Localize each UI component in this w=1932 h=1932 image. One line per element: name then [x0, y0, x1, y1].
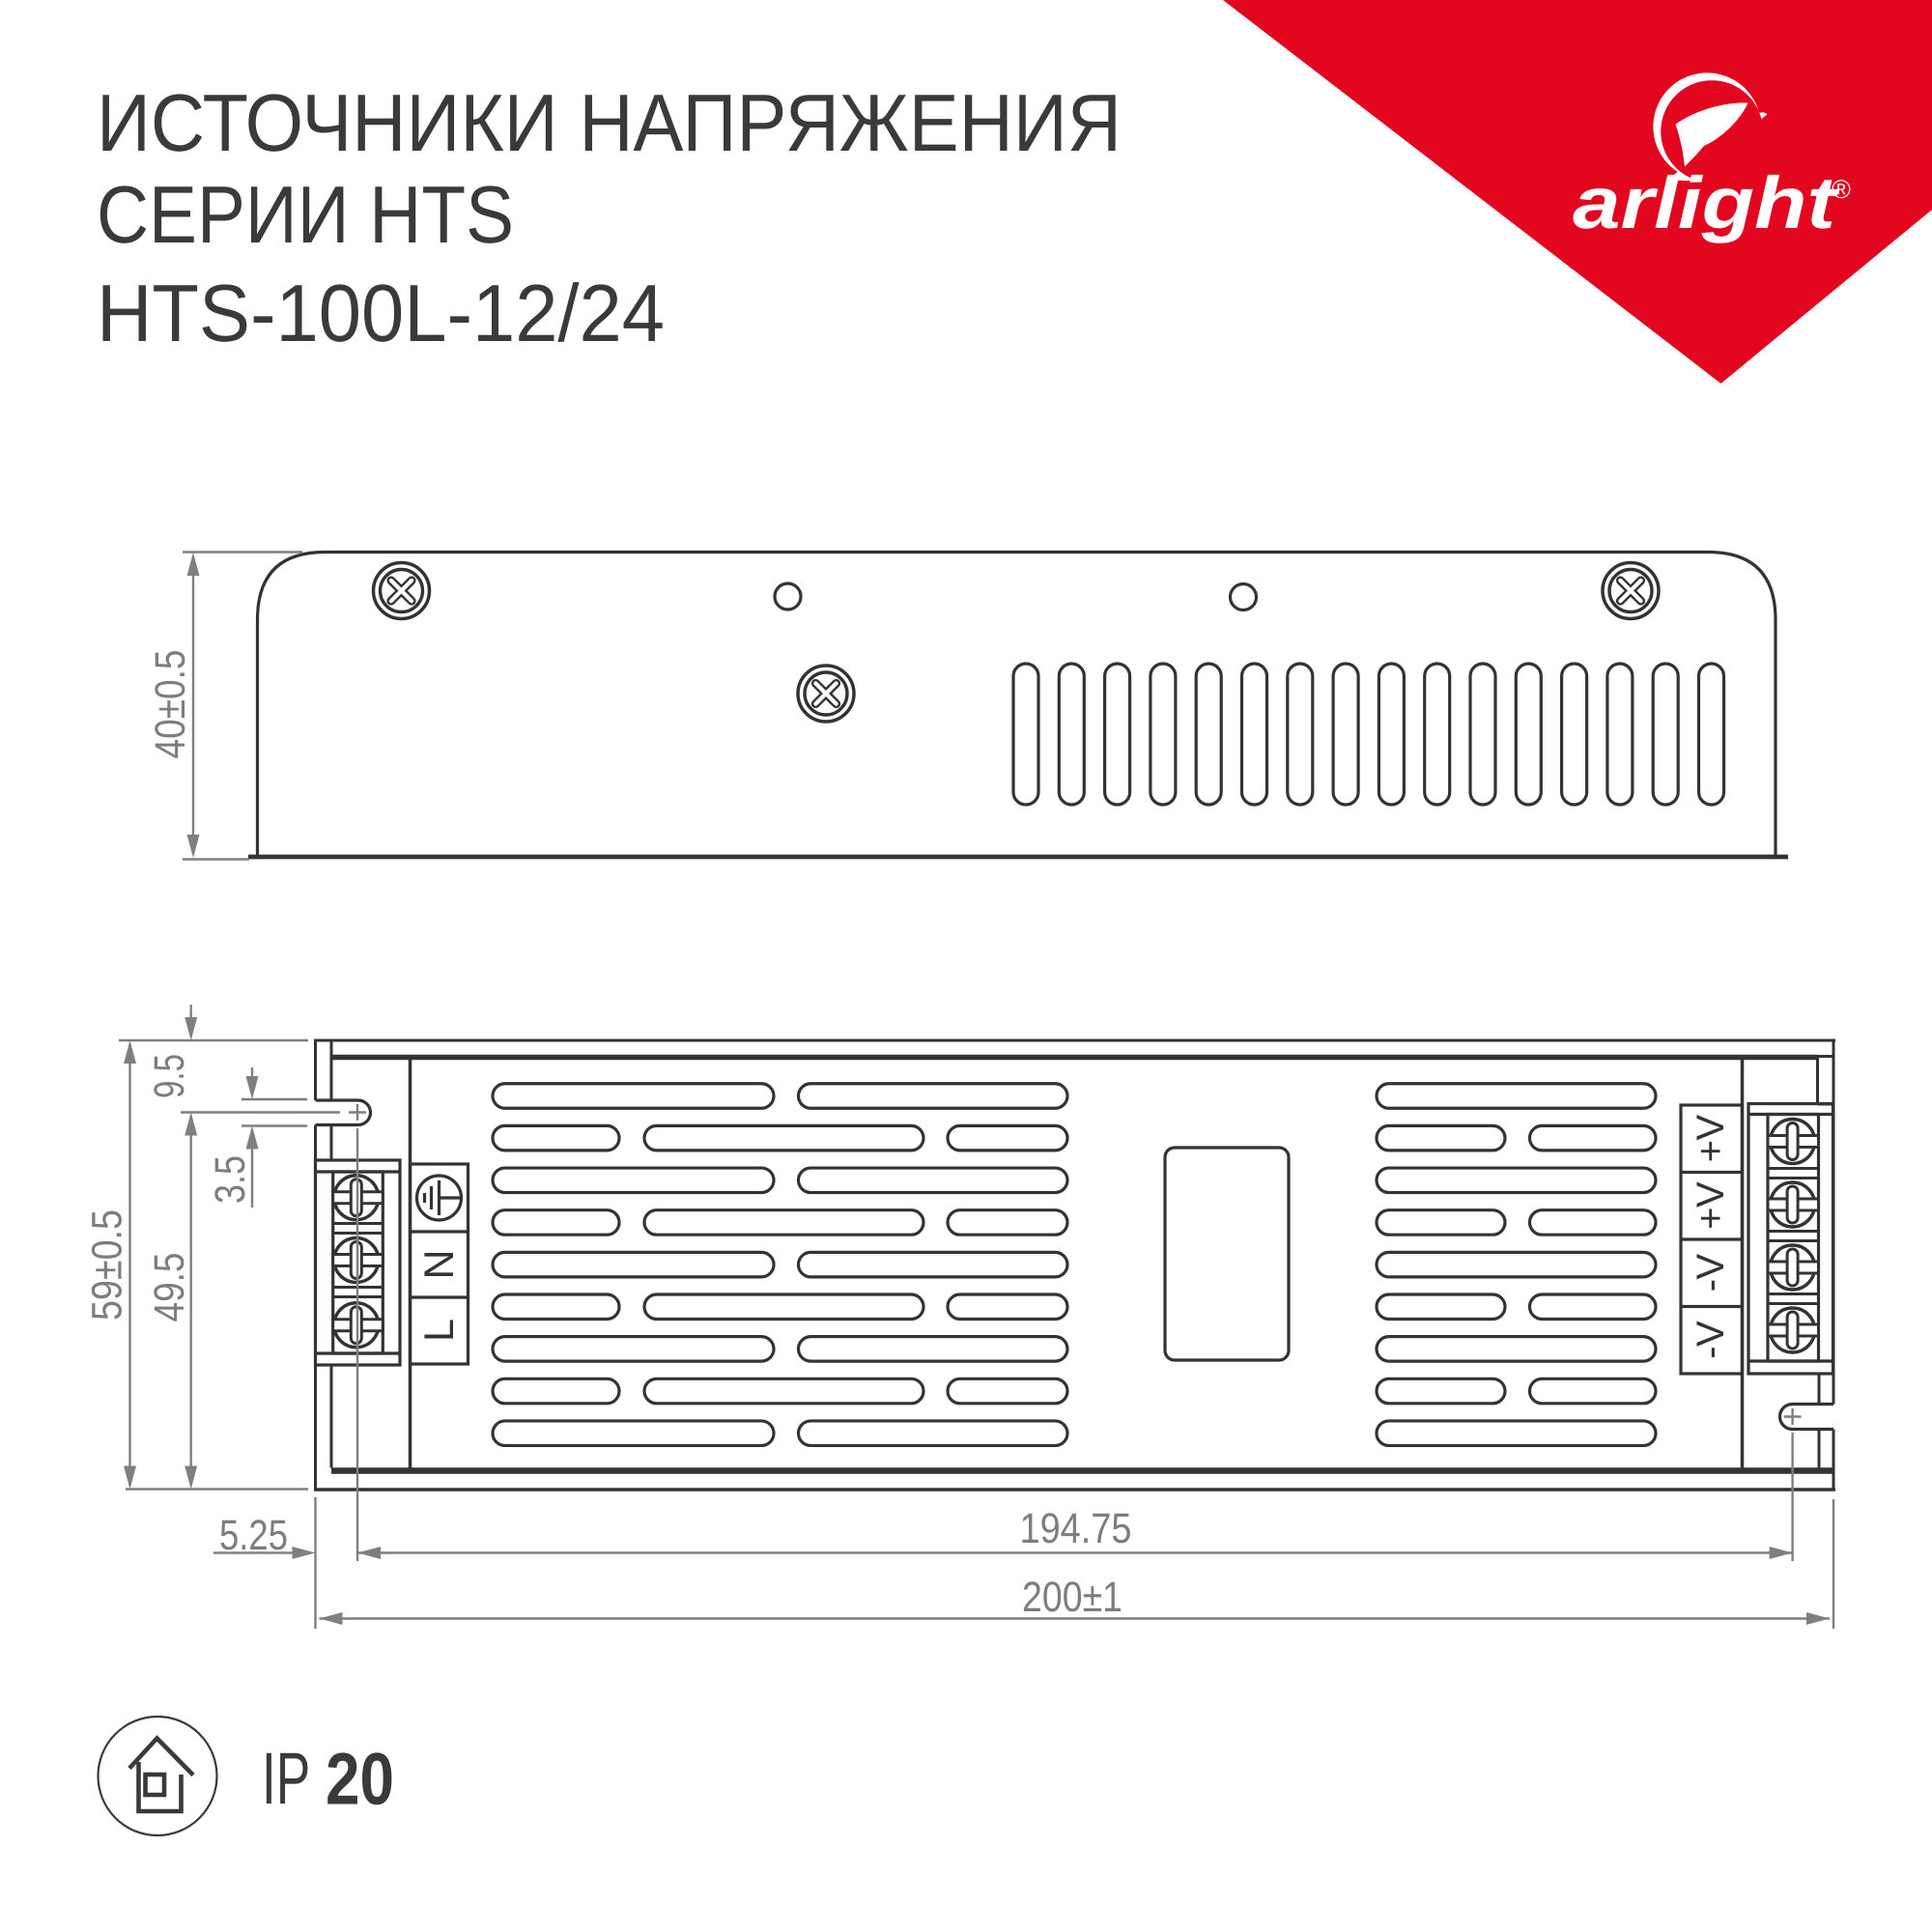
svg-text:IP: IP: [262, 1738, 310, 1820]
svg-text:+V: +V: [1690, 1181, 1732, 1230]
svg-text:L: L: [416, 1319, 463, 1342]
svg-text:ИСТОЧНИКИ НАПРЯЖЕНИЯ: ИСТОЧНИКИ НАПРЯЖЕНИЯ: [97, 77, 1122, 168]
svg-text:3.5: 3.5: [207, 1155, 254, 1204]
svg-text:59±0.5: 59±0.5: [84, 1209, 131, 1321]
svg-text:5.25: 5.25: [219, 1512, 288, 1559]
svg-text:HTS-100L-12/24: HTS-100L-12/24: [97, 268, 665, 358]
svg-text:arlight: arlight: [1573, 162, 1838, 244]
svg-text:N: N: [416, 1249, 463, 1279]
svg-text:194.75: 194.75: [1020, 1505, 1132, 1552]
svg-text:-V: -V: [1690, 1253, 1732, 1292]
svg-text:СЕРИИ HTS: СЕРИИ HTS: [97, 169, 514, 260]
svg-text:+V: +V: [1690, 1114, 1732, 1162]
svg-text:200±1: 200±1: [1022, 1574, 1122, 1621]
svg-text:®: ®: [1832, 175, 1851, 204]
svg-text:-V: -V: [1690, 1321, 1732, 1359]
svg-text:49.5: 49.5: [146, 1253, 193, 1322]
svg-text:20: 20: [326, 1739, 394, 1821]
svg-text:9.5: 9.5: [146, 1054, 193, 1098]
svg-text:40±0.5: 40±0.5: [147, 650, 194, 759]
